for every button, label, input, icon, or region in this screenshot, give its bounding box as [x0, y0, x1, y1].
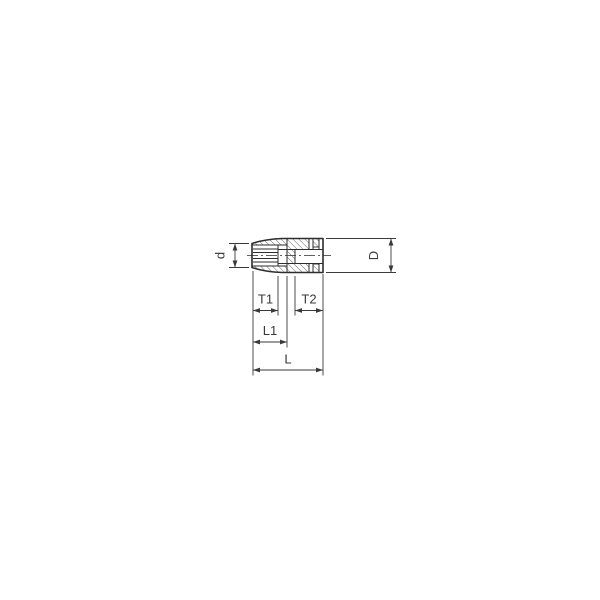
- arrowhead-icon: [253, 308, 260, 313]
- socket-technical-drawing: d D T1 T2 L1 L: [0, 0, 600, 600]
- dimension-D: [326, 239, 396, 273]
- dim-label-T2: T2: [301, 292, 316, 307]
- arrowhead-icon: [280, 340, 287, 345]
- dimension-d: [229, 244, 249, 268]
- arrowhead-icon: [253, 368, 260, 373]
- dimension-T2: [295, 308, 323, 313]
- arrowhead-icon: [316, 368, 323, 373]
- hatch-mid-wall: [287, 250, 295, 264]
- hatch-bottom-middle: [287, 264, 309, 273]
- dimension-L: [253, 368, 323, 373]
- arrowhead-icon: [316, 308, 323, 313]
- hatch-ring-bottom: [313, 264, 319, 273]
- dim-label-L1: L1: [263, 323, 277, 338]
- dim-label-T1: T1: [258, 292, 273, 307]
- dim-label-L: L: [284, 352, 291, 367]
- arrowhead-icon: [271, 308, 278, 313]
- drawing-canvas: d D T1 T2 L1 L: [0, 0, 600, 600]
- hatch-top-middle: [287, 239, 309, 250]
- arrowhead-icon: [389, 239, 394, 246]
- arrowhead-icon: [389, 266, 394, 273]
- arrowhead-icon: [233, 244, 238, 251]
- dim-label-D: D: [366, 251, 381, 260]
- dimension-L1: [253, 340, 287, 345]
- arrowhead-icon: [233, 261, 238, 268]
- arrowhead-icon: [295, 308, 302, 313]
- dimension-T1: [253, 308, 278, 313]
- dim-label-d: d: [213, 252, 228, 259]
- arrowhead-icon: [253, 340, 260, 345]
- hatch-ring-top: [313, 239, 319, 248]
